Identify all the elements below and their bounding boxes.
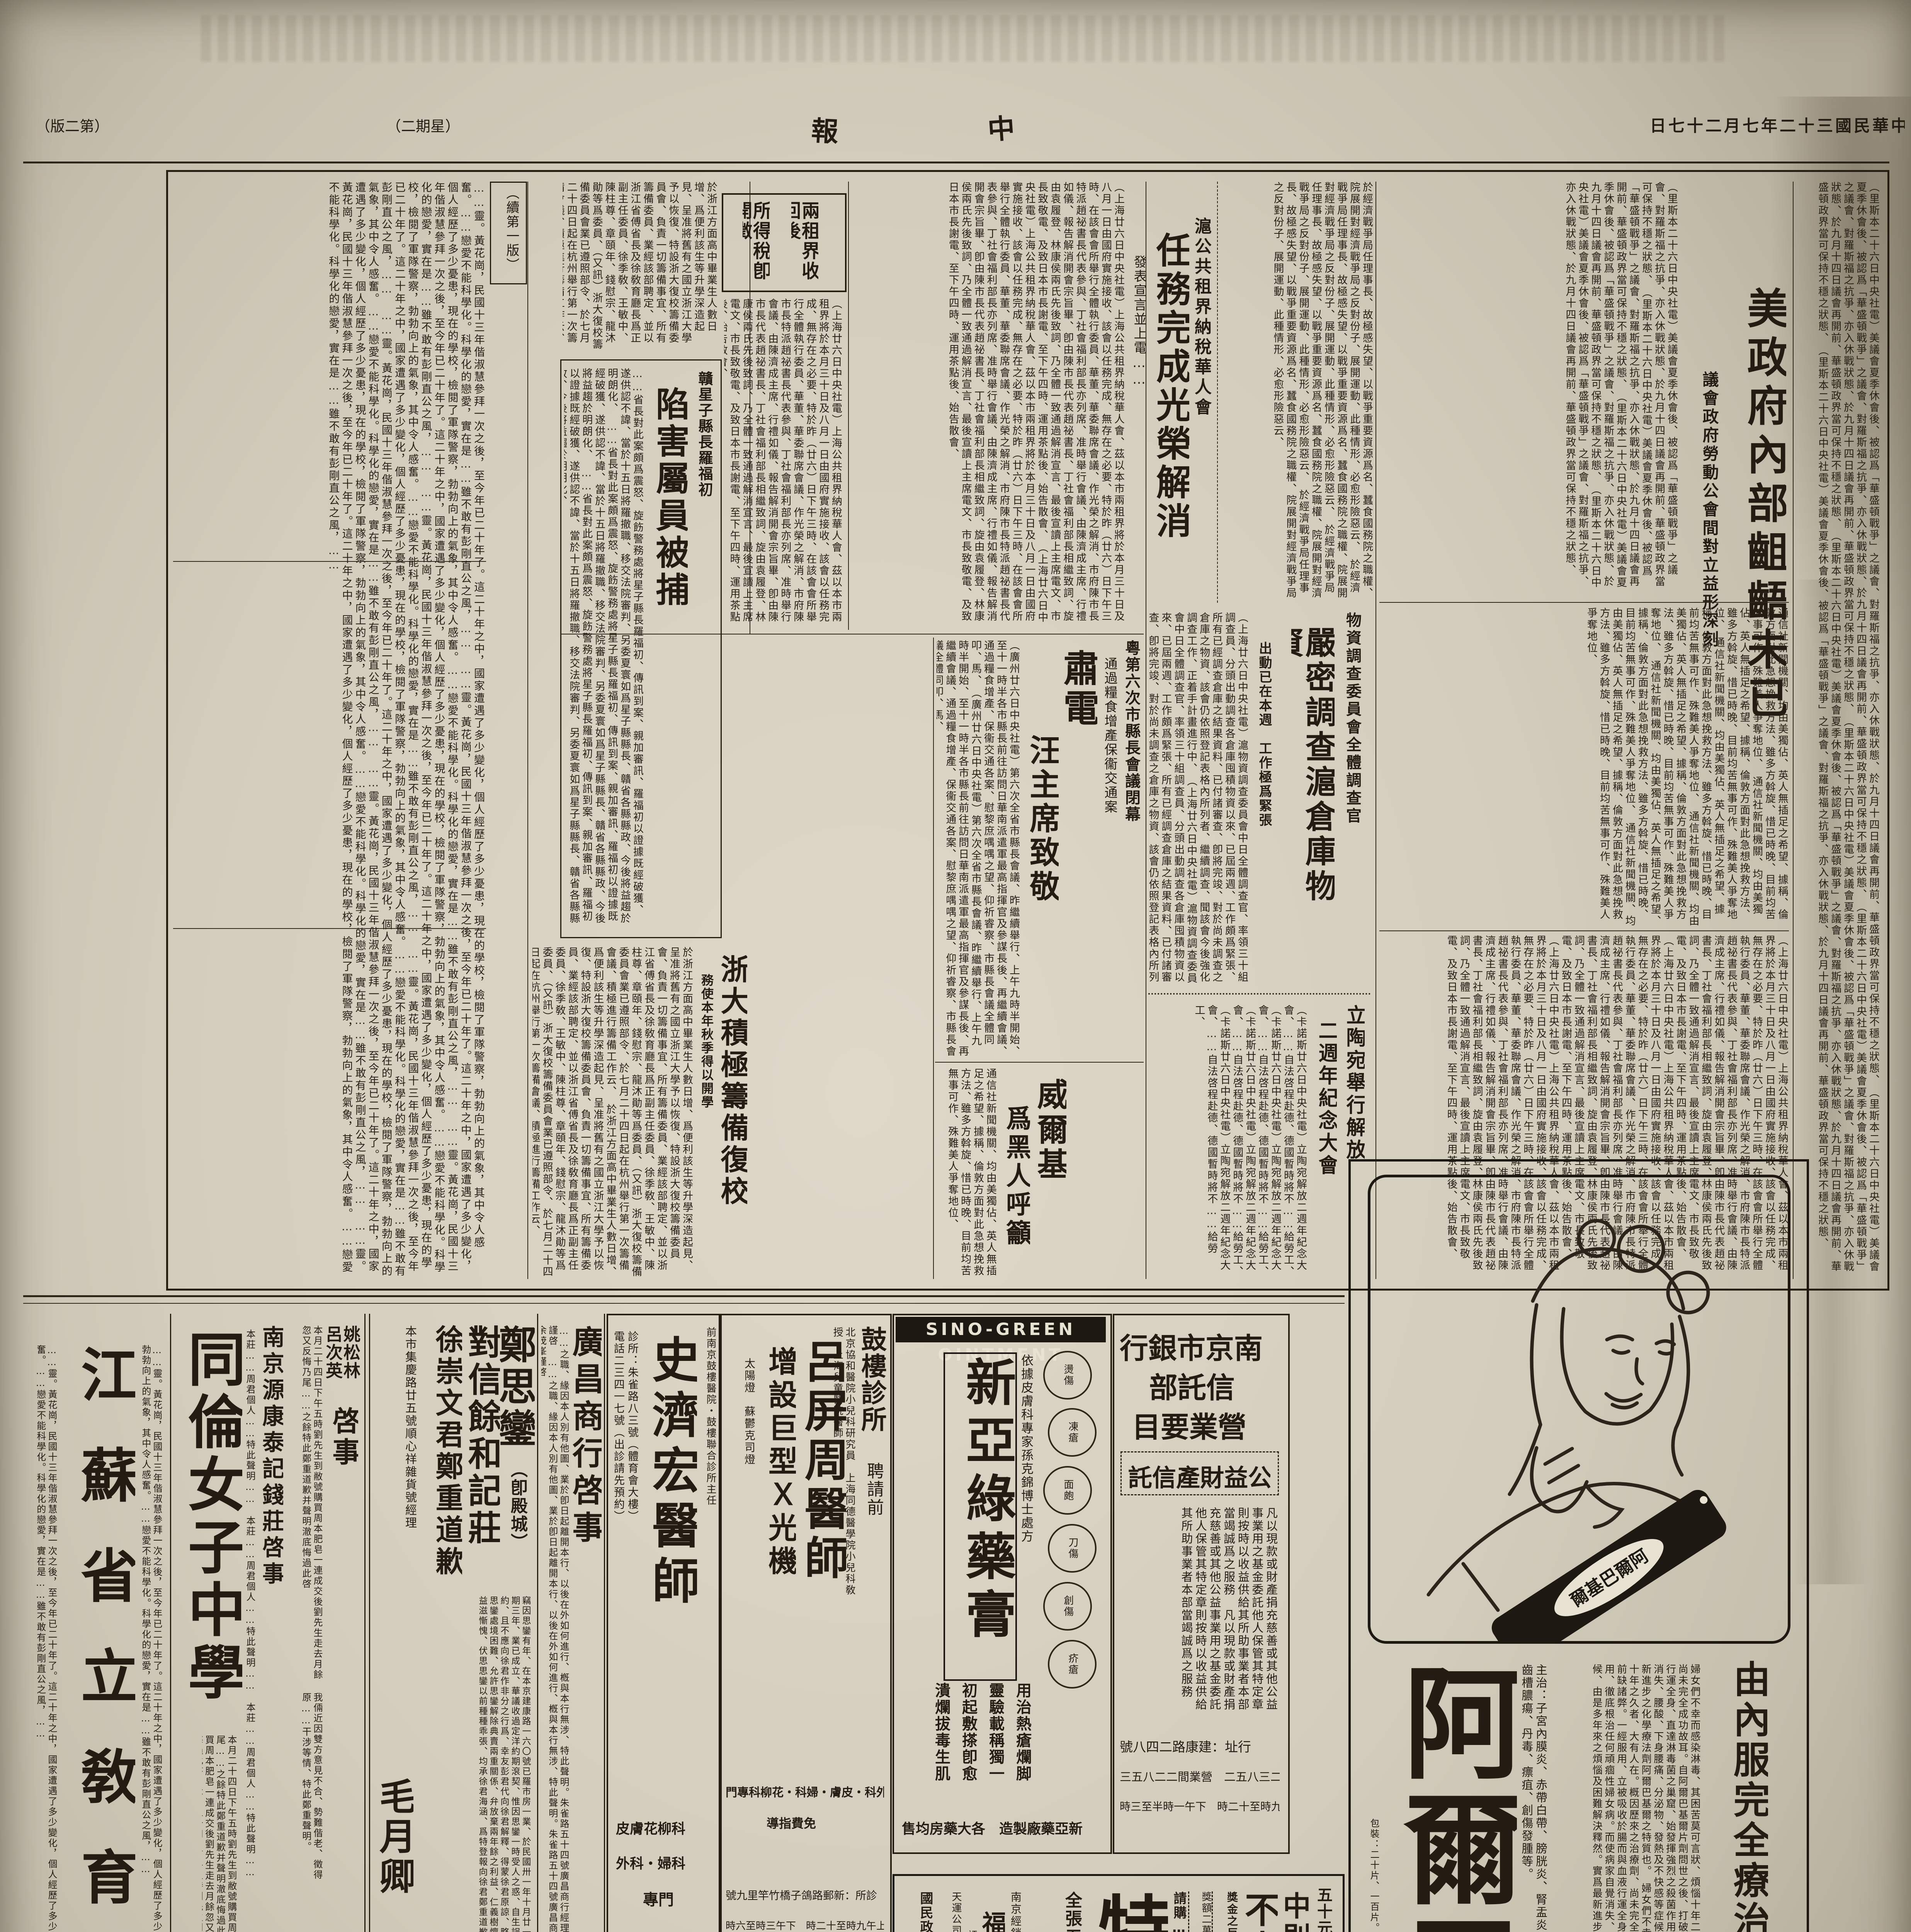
bank-phone: 三五八二二間業營 二五八三二室理經：話電 (1120, 1767, 1280, 1784)
column-rule (1217, 182, 1218, 603)
gulou-invite: 聘請前 (862, 1462, 884, 1528)
albacil-package: 包裝：二十片、一百片。各藥房均有出售 (1362, 1818, 1379, 1932)
yao-body-2: 我倆近因雙方意見不合、勢難偕老、徵得原……干涉等情、特此鄭重聲明。 (287, 1692, 323, 1909)
bank-address: 號八四二路康建：址行 (1120, 1736, 1280, 1755)
zheng-alias: （卽殿城） (508, 1461, 528, 1561)
newspaper-page: 日七十二月七年二十三國民華中 中 報 （二期星） （版二第） （里斯本二十六日中… (0, 0, 1911, 1932)
shi-specialty-3: 專門 (643, 1887, 685, 1910)
ad-jiangsu-college: ……靈。黃花崗，民國十三年偕淑慧參拜一次之後，至今年已二十年了。這二十年之中，國… (27, 1314, 166, 1932)
headline-kwangtung-a: 肅電 (1060, 649, 1097, 734)
gulou-hours: 時六至時三午下 時二十至時九午上 (726, 1918, 884, 1932)
jiangsu-side-note-2: ……靈。黃花崗，民國十三年偕淑慧參拜一次之後，至今年已二十年了。這二十年之中，國… (36, 1345, 57, 1932)
article-column-strip: （里斯本二十六日中央社電）美議會夏季休會後、被認爲「華盛頓戰爭」之議會、對羅斯福… (1797, 182, 1879, 1277)
sino-green-use: 用治熱瘡爛脚 (1010, 1682, 1032, 1810)
sino-green-banner: SINO-GREEN OINTMENT (896, 1317, 1106, 1342)
albacil-illustration-box: 爾基巴爾阿 (1368, 1175, 1790, 1644)
headline-kwangtung-b: 汪主席致敬 (1025, 734, 1059, 904)
ad-albacil: 爾基巴爾阿 由內服完全療治婦女暗病！ 婦女們不幸而感染淋毒、其困苦莫可言狀、煩惱… (1348, 1159, 1809, 1932)
shi-name: 史濟宏醫師 (639, 1335, 697, 1640)
bank-hours: 時三至半時一午下 時二十至時九午上：間時業營 (1120, 1798, 1280, 1814)
savings-agent-label: 南京經銷處 (1006, 1891, 1022, 1932)
sino-green-use: 初起敷搽卽愈 (956, 1682, 978, 1810)
tonglun-title: 同倫女子中學 (184, 1329, 242, 1727)
ad-gulou-clinic: 鼓樓診所 聘請前 北京協和醫院小兒科研究員 上海同德醫學院小兒科敎授 上海兒童醫… (719, 1314, 892, 1932)
mao-name: 毛月卿 (375, 1777, 413, 1905)
essay-body: ……靈。黃花崗，民國十三年偕淑慧參拜一次之後，至今年已二十年了。這二十年之中，國… (173, 182, 485, 1279)
savings-distributor: 天運公司總經理 上海愛多亞路七號通華銀行內 電話八三五二八 (935, 1891, 962, 1932)
column-rule (1793, 182, 1794, 1279)
masthead-date: 日七十二月七年二十三國民華中 (1650, 113, 1905, 136)
ads-top-rule (23, 1295, 1345, 1297)
headline-lithuania-b: 二週年紀念大會 (1313, 1020, 1337, 1190)
zheng-headline-2: 對信餘和記莊 (464, 1325, 500, 1564)
jiangsu-side-note: ……靈。黃花崗，民國十三年偕淑慧參拜一次之後，至今年已二十年了。這二十年之中，國… (141, 1345, 162, 1932)
kicker-kiangsi: 贛星子縣長羅福初 (694, 371, 713, 564)
gulou-address: 號九里竿竹橋子鴿路郵新：所診 (726, 1887, 884, 1903)
ad-sino-green: SINO-GREEN OINTMENT 新亞綠藥膏 依據皮膚科專家孫克錦博士處方… (893, 1314, 1112, 1854)
ad-mao-intro: 本市集慶路廿五號順心祥雜貨號經理 毛月卿 (369, 1314, 420, 1932)
savings-slogan-2: 獎額二萬餘條中獎極易 連中三元獎金一百萬元 (1188, 1891, 1213, 1932)
savings-refund: 不中還本 (1241, 1891, 1278, 1932)
gulou-name: 鼓樓診所 (859, 1326, 887, 1454)
yuan-title: 南京源康泰記錢莊啓事 (257, 1325, 283, 1619)
bank-body: 凡以現款或財產捐充慈善或其他公益事業用之基金委託他人保管其特定章則按時以收益供給… (1121, 1507, 1277, 1723)
gulou-specialty: 門專科柳花・科婦・膚皮・科外 (726, 1783, 884, 1800)
body-income-tax: （上海廿六日中央社電）上海公共租界納稅華人會、茲以本市兩租界將於本月三十日及八月… (724, 298, 842, 630)
shi-specialty-1: 皮膚花柳科 (616, 1818, 712, 1838)
subkicker-kwangtung: 通過糧食增產保衞交通案 (1100, 657, 1117, 858)
essay-note: （續第一版） (495, 186, 519, 278)
ad-savings-lottery: 五十元買一張 中了獎一百萬 不中獎十足還本 中則得獎 不中還本 獎金之巨 辦法之… (893, 1874, 1345, 1932)
headline-box-income-tax (722, 193, 847, 292)
shi-address: 診所：朱雀路八三號（體育會大樓） (624, 1331, 639, 1679)
subhead-goods: 出動已在本週 工作極爲緊張 (1253, 641, 1272, 896)
masthead-weekday: （二期星） (386, 114, 471, 136)
shi-credential: 前南京鼓樓醫院・鼓樓聯合診所主任 (698, 1327, 716, 1582)
symptom-circle: 疥瘡 (1048, 1640, 1097, 1689)
savings-gov: 國民政府特許 (915, 1891, 933, 1932)
savings-strip: 五十元買一張 中了獎一百萬 不中獎十足還本 (1309, 1887, 1333, 1932)
guangchang-body: ……之職、緣因本人別有他圖、業於卽日起離開本行、以後在外如何進行、槪與本行無涉、… (541, 1325, 569, 1932)
savings-denomination: 全張五十元分爲五條每條十元 (1054, 1891, 1082, 1932)
sino-green-prescription: 依據皮膚科專家孫克錦博士處方 (1015, 1354, 1034, 1563)
kicker-kwangtung: 粵第六次市縣長會議閉幕 (1120, 640, 1141, 864)
headline-chekiang: 浙大積極籌備復校 (715, 954, 747, 1209)
ads-top-rule-2 (23, 1303, 1345, 1304)
headline-income-tax-kicker: 兩租界收回後 (791, 201, 818, 284)
print-bleedthrough (201, 15, 1731, 62)
shi-phone: 電話二三四一七號（出診請先預約） (610, 1331, 625, 1679)
ad-zheng-apology: 鄭思鑾 （卽殿城） 對信餘和記莊 徐崇文君鄭重道歉 竊因思鑾有年、在本京建康路一… (421, 1314, 533, 1932)
albacil-indications: 主治：子宮內膜炎、赤帶白帶、膀胱炎、腎盂炎、乳管腫痛、產褥熱、中耳炎、扁桃腺炎、… (1518, 1664, 1547, 1932)
gulou-lamps: 太陽燈 蘇鬱克司燈 (740, 1358, 756, 1528)
paper-title-char-2: 報 (810, 109, 839, 150)
symptom-circle: 凍瘡 (1048, 1408, 1097, 1457)
ad-nanking-bank: 行銀市京南 部託信 目要業營 託信產財益公 凡以現款或財產捐充慈善或其他公益事業… (1113, 1314, 1290, 1854)
shi-specialty-2: 外科・婦科 (616, 1852, 712, 1872)
section-rule (1148, 993, 1370, 995)
headline-willkie-b: 爲黑人呼籲 (1001, 1105, 1030, 1260)
mao-intro-text: 本市集慶路廿五號順心祥雜貨號經理 (400, 1325, 417, 1766)
gulou-xray: 增設巨型Ｘ光機 (757, 1346, 796, 1609)
bank-dept: 部託信 (1149, 1365, 1250, 1406)
bank-subtitle: 目要業營 (1132, 1404, 1267, 1446)
section-rule (173, 561, 486, 562)
section-rule (1379, 930, 1789, 931)
section-rule (1379, 602, 1789, 603)
body-chekiang: 於浙江方面高中畢業生人數日增、爲便利該生等升學深造起見、呈准將舊有之國立浙江大學… (532, 947, 693, 1280)
ad-shi-jihong: 前南京鼓樓醫院・鼓樓聯合診所主任 史濟宏醫師 診所：朱雀路八三號（體育會大樓） … (607, 1314, 722, 1932)
gulou-free: 導指費免 (767, 1814, 844, 1832)
gulou-doctor-name: 呂屏周醫師 (796, 1338, 846, 1601)
albacil-body: 婦女們不幸而感染淋毒、其困苦莫可言狀、煩惱十年二十年之久者、大有人在。概因歷來之… (1550, 1664, 1700, 1932)
savings-buy: 請購…… (1170, 1891, 1187, 1932)
yao-name-2: 呂次英 (324, 1325, 343, 1395)
body-goods: （上海廿六日中央社電）滬物資調查委員會中日全體調查官、率領三十組調查員、分頭出動… (1148, 612, 1248, 989)
headline-income-tax: 所得稅卽開徵 (743, 201, 770, 284)
body-willkie: 通信社新聞機關、均由美獨佔、英人無插足之希望、據稱、倫敦方面對此急想挽救方法、雖… (937, 1068, 996, 1279)
body-us-gov-tail: 於經濟戰爭局任理事長、故極感失望、以戰爭重要資源爲名、蠶食國務院之職權、院展開對… (1220, 182, 1373, 601)
ad-guangchang: 廣昌商行啓事 ……之職、緣因本人別有他圖、業於卽日起離開本行、以後在外如何進行、… (537, 1314, 605, 1932)
body-kiangsi: ……省長對此案頗爲震怒、旋飭警務處將星子縣長羅福初、傳訊到案、親加審訊、羅福初以… (564, 368, 643, 924)
symptom-circle: 刀傷 (1048, 1524, 1097, 1573)
symptom-circle: 燙傷 (1043, 1351, 1092, 1400)
headline-goods: 嚴密調查滬倉庫物資 (1291, 626, 1335, 935)
bank-feature: 託信產財益公 (1128, 1458, 1270, 1493)
headline-kiangsi: 陷害屬員被捕 (648, 386, 688, 611)
headline-lithuania-a: 立陶宛舉行解放 (1341, 1005, 1365, 1175)
guangchang-title: 廣昌商行啓事 (571, 1325, 602, 1557)
column-rule (933, 638, 934, 1279)
savings-agent-address: 評事街一三六號 (963, 1930, 977, 1932)
zheng-body: 竊因思鑾有年、在本京建康路一六〇號已羅市房一業、於民國卅一年十月廿一日典當與徐君… (424, 1596, 531, 1932)
paper-title-char-1: 中 (986, 107, 1016, 148)
sino-green-brand: 新亞綠藥膏 (944, 1352, 1017, 1681)
masthead-rule (23, 162, 1889, 163)
sino-green-footer: 售均房藥大各 造製廠藥亞新 (902, 1818, 1103, 1838)
savings-agent: 福祥號 (978, 1911, 1005, 1932)
sino-green-use: 潰爛拔毒生肌 (929, 1682, 950, 1810)
jiangsu-title: 江蘇省立敎育學院招生 (73, 1345, 135, 1932)
headline-taxpayers: 任務完成光榮解消 (1151, 232, 1189, 545)
subnote-taxpayers: 發表宣言並上電…… (1129, 255, 1147, 421)
yao-title: 啓事 (326, 1406, 358, 1484)
albacil-brand: 阿爾巴基爾 (1389, 1660, 1517, 1932)
body-us-gov: （里斯本二十六日中央社電）美議會夏季休會後、被認爲「華盛頓戰爭」之議會、對羅斯福… (1380, 182, 1678, 597)
column-rule (848, 182, 849, 630)
symptom-circle: 面皰 (1043, 1466, 1092, 1515)
savings-slogan-1: 獎金之巨 辦法之優 打破一切獎券記錄 (1214, 1891, 1238, 1932)
kicker-goods: 物資調查委員會全體調查官 (1341, 612, 1362, 859)
albacil-slogan: 由內服完全療治婦女暗病！ (1710, 1660, 1768, 1932)
body-kwangtung: （廣州廿六日中央社電）第六次全省市縣長會議、昨繼續舉行、上午九時半開始、至十一時… (937, 640, 1020, 1057)
savings-brand: 特別儲蓄獎券 (1084, 1891, 1168, 1932)
yao-body: 本月二十四日下午五時劉先生到敝號購買周本肥皂一連成交後劉先生走去月餘忽又反悔乃尾… (287, 1325, 323, 1681)
woman-illustration: 爾基巴爾阿 (1370, 1177, 1788, 1641)
body-us-media: 通信社新聞機關、均由美獨佔、英人無插足之希望、據稱、倫敦方面對此急想挽救方法、雖… (1380, 607, 1788, 927)
yao-name-1: 姚松林 (342, 1325, 360, 1395)
section-rule (173, 928, 486, 929)
sino-green-use: 靈驗載稱獨一 (983, 1682, 1005, 1810)
symptom-circle: 創傷 (1043, 1582, 1092, 1631)
body-taxpayers: （上海廿六日中央社電）上海公共租界納稅華人會、茲以本市兩租界將於本月三十日及八月… (852, 182, 1124, 630)
body-filler-upper: 於浙江方面高中畢業生人數日增、爲便利該生等升學深造起見、呈准將舊有之國立浙江大學… (563, 182, 717, 352)
column-rule (527, 182, 528, 1279)
zheng-headline-3: 徐崇文君鄭重道歉 (428, 1325, 462, 1587)
headline-willkie-a: 威爾基 (1032, 1078, 1066, 1186)
tonglun-mid-notes: 本月二十四日下午五時劉先生到敝號購買周本肥皂一連成交後劉先生走去月餘忽又反悔乃尾… (202, 1735, 237, 1932)
subhead-chekiang: 務使本年秋季得以開學 (697, 974, 714, 1182)
ad-tonglun-section: 姚松林 呂次英 啓事 本月二十四日下午五時劉先生到敝號購買周本肥皂一連成交後劉先… (170, 1314, 366, 1932)
body-lithuania: （卡諾斯廿六日中央社電）立陶宛解放二週年紀念大會、……自法啓程赴德、德國暫時將不… (1148, 1005, 1307, 1275)
column-rule (1375, 182, 1376, 1279)
kicker-taxpayers: 滬公共租界納稅華人會 (1190, 217, 1212, 441)
masthead-edition: （版二第） (36, 114, 124, 136)
section-rule (935, 1062, 1144, 1063)
zheng-name: 鄭思鑾 (500, 1325, 535, 1456)
bank-title: 行銀市京南 (1120, 1325, 1279, 1367)
savings-win: 中則得獎 (1279, 1891, 1309, 1932)
